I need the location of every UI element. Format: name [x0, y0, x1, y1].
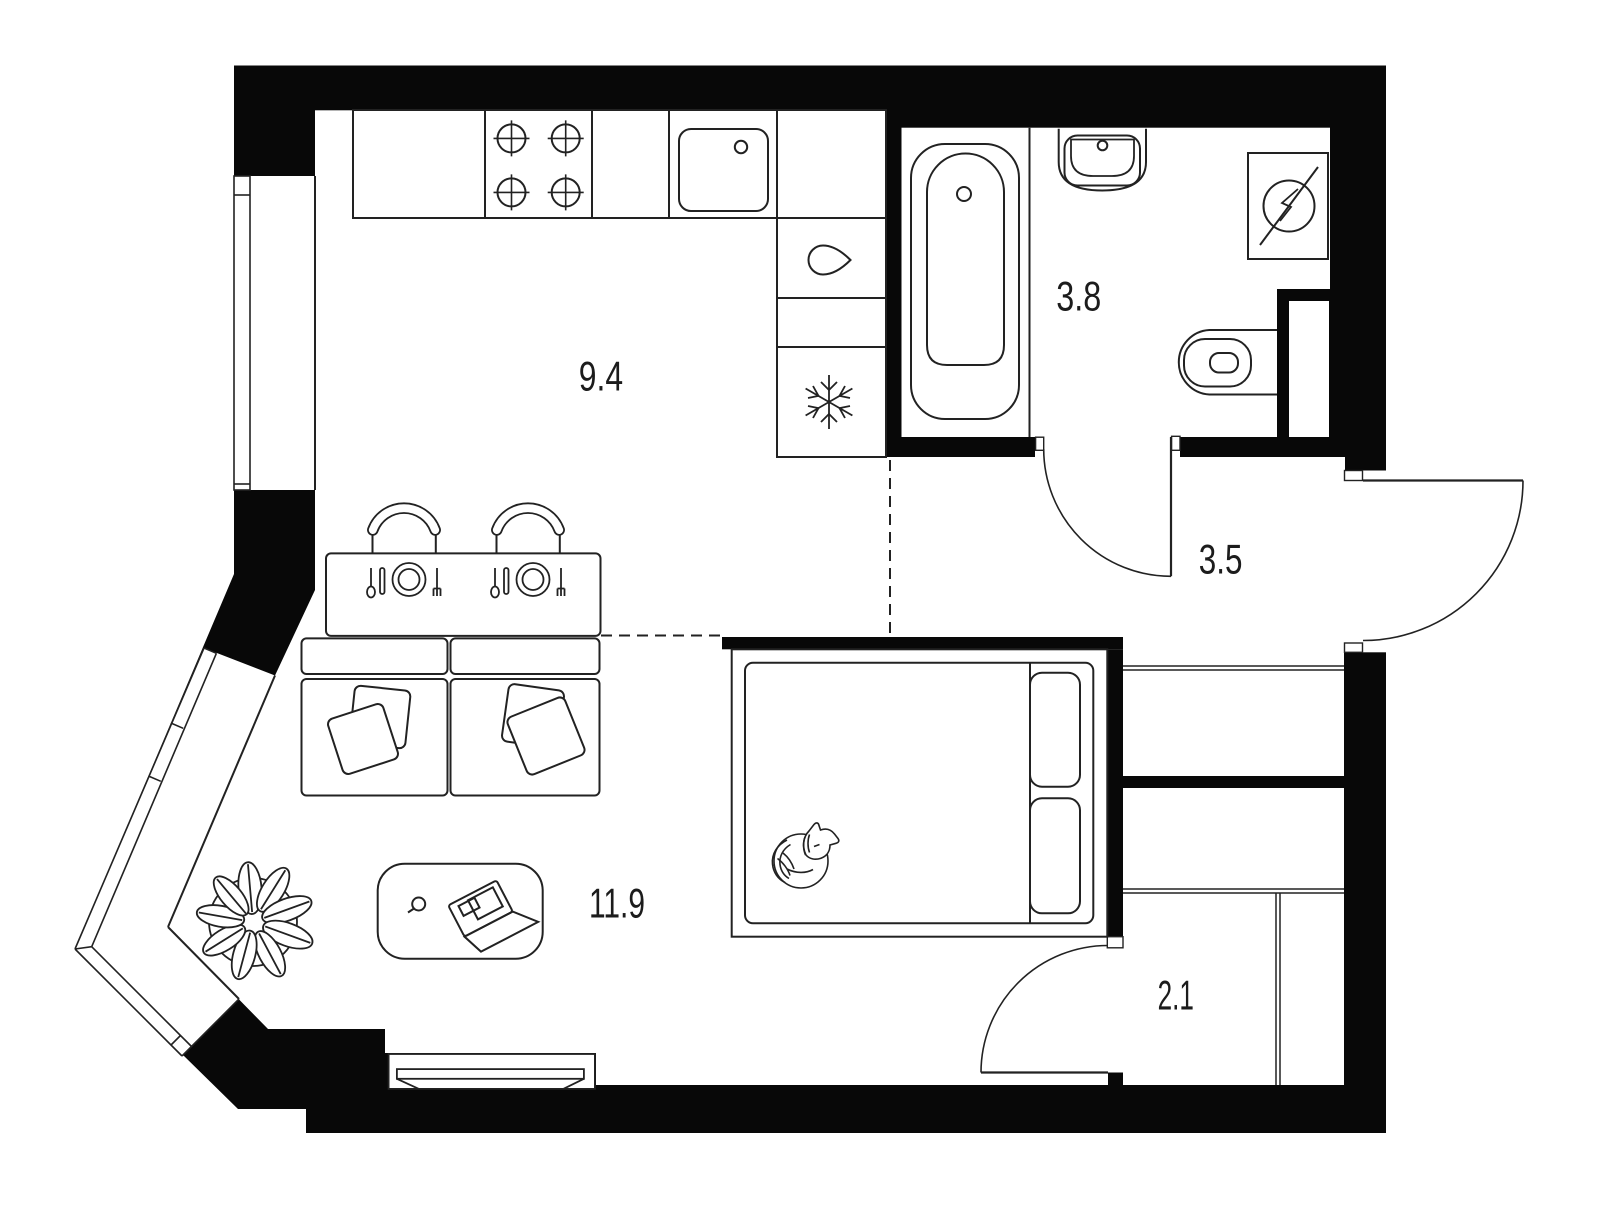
svg-text:11.9: 11.9: [589, 880, 645, 927]
svg-text:2.1: 2.1: [1158, 972, 1194, 1019]
svg-text:9.4: 9.4: [579, 353, 623, 400]
svg-text:3.8: 3.8: [1056, 273, 1101, 320]
svg-text:3.5: 3.5: [1199, 536, 1243, 583]
